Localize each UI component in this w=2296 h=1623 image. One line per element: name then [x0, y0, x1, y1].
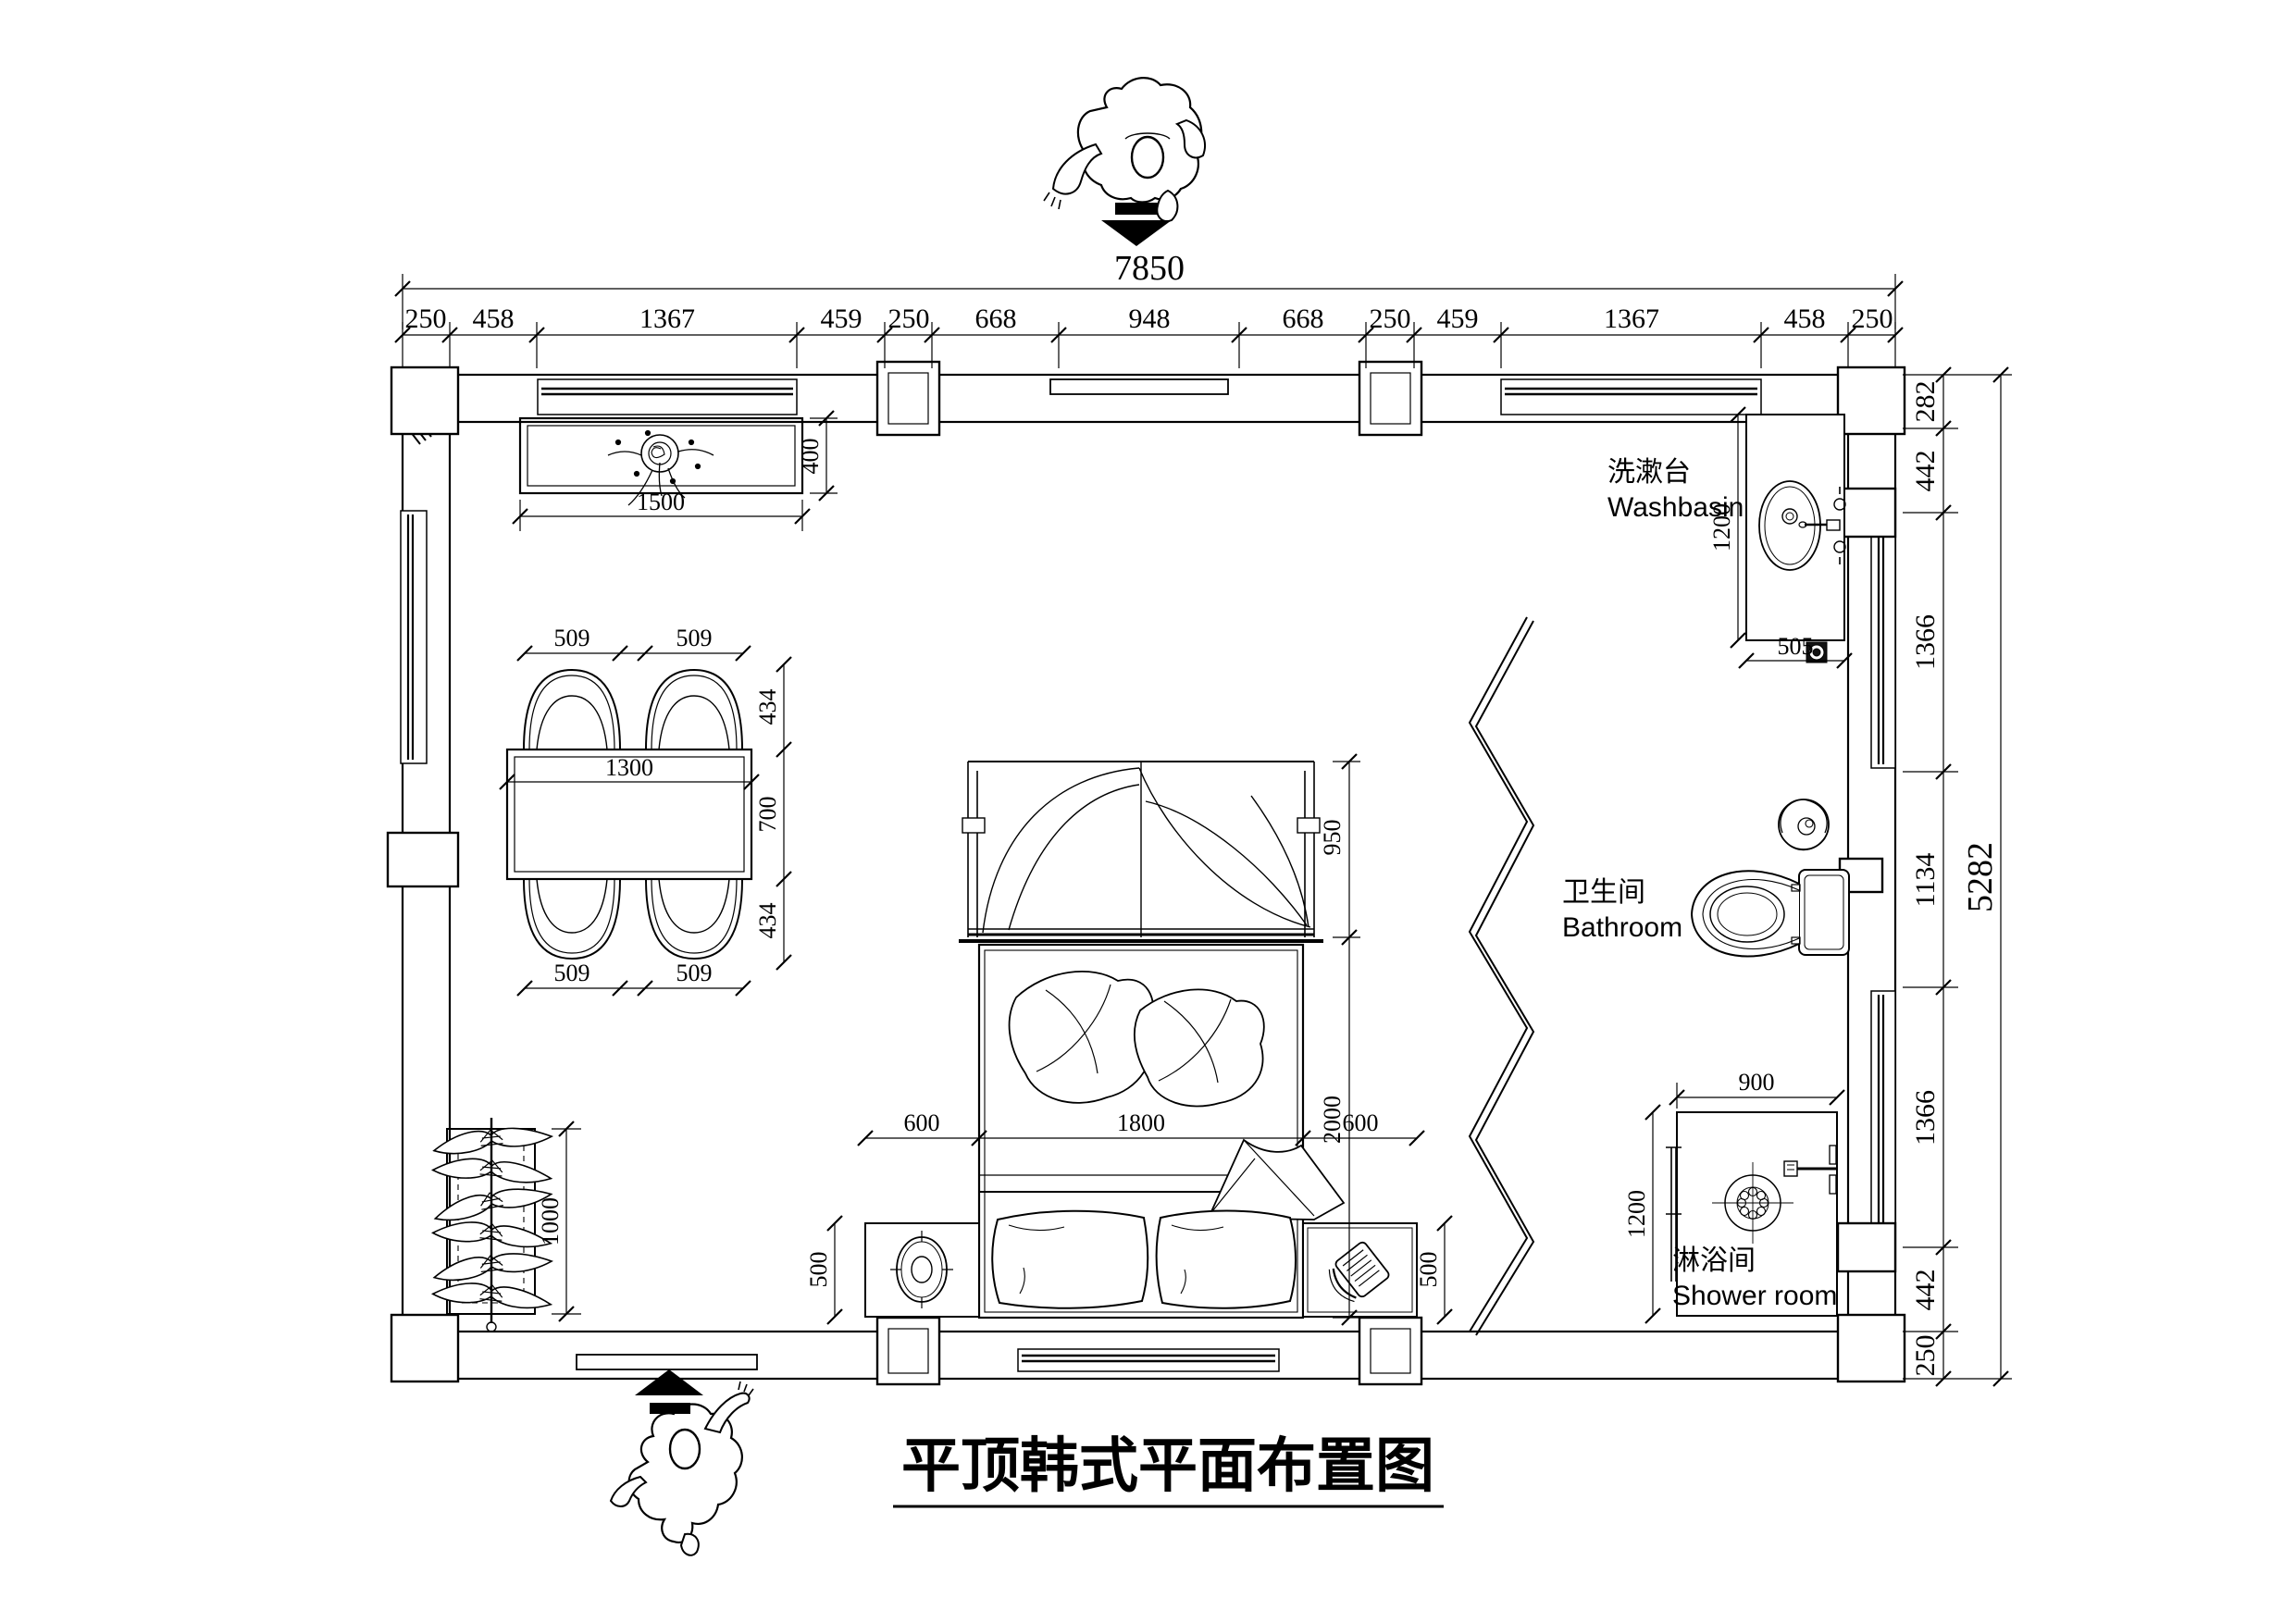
column	[1371, 1329, 1410, 1373]
drawing-title: 平顶韩式平面布置图	[893, 1432, 1444, 1506]
toilet	[1692, 870, 1849, 956]
dining-chair	[646, 879, 742, 959]
pillow-crumpled	[1135, 989, 1264, 1106]
label-shower-en: Shower room	[1672, 1281, 1837, 1311]
label-washbasin-en: Washbasin	[1607, 492, 1744, 523]
column	[1371, 373, 1410, 424]
dim-text: 509	[676, 960, 713, 986]
column	[388, 833, 458, 886]
dim-text: 250	[888, 304, 930, 334]
dim-text: 500	[805, 1252, 832, 1288]
door-top-entry	[1050, 379, 1228, 394]
dim-text: 250	[405, 304, 447, 334]
dim-text: 442	[1910, 451, 1941, 492]
dim-text: 250	[1852, 304, 1893, 334]
dim-text: 948	[1129, 304, 1171, 334]
label-shower-zh: 淋浴间	[1672, 1245, 1756, 1276]
nightstand-right	[1303, 1223, 1417, 1317]
dim-text: 282	[1910, 381, 1941, 423]
dim-text: 900	[1739, 1069, 1775, 1096]
dim-text: 600	[1343, 1109, 1379, 1136]
column	[391, 1315, 458, 1381]
column	[888, 1329, 928, 1373]
pillow-crumpled	[1010, 972, 1154, 1103]
dim-text: 1000	[537, 1197, 564, 1245]
dining-set	[507, 670, 751, 959]
exhaust-fan-icon	[1779, 799, 1829, 850]
label-bathroom-zh: 卫生间	[1562, 877, 1645, 908]
window-bottom	[1018, 1349, 1279, 1371]
page-title: 平顶韩式平面布置图	[901, 1432, 1434, 1499]
dim-text: 1366	[1910, 614, 1941, 670]
dim-text: 1300	[605, 754, 653, 781]
floor-plan-page: 7850 250 458 1367 459 250 668 948 668 25…	[0, 0, 2296, 1623]
column	[1838, 489, 1895, 537]
dim-text: 459	[821, 304, 863, 334]
dim-text: 7850	[1114, 249, 1185, 288]
person-head	[670, 1430, 700, 1468]
dim-text: 1367	[1604, 304, 1659, 334]
washbasin-counter	[1746, 415, 1845, 663]
dim-text: 500	[1415, 1252, 1442, 1288]
dim-text: 509	[554, 960, 590, 986]
dim-text: 442	[1910, 1270, 1941, 1311]
window-top-left	[538, 379, 797, 415]
dim-text: 434	[754, 689, 781, 725]
dim-text: 5282	[1961, 842, 2000, 912]
folding-partition	[1470, 617, 1533, 1335]
dim-text: 250	[1370, 304, 1411, 334]
column	[1838, 1315, 1905, 1381]
dim-text: 509	[676, 625, 713, 651]
dining-chair	[646, 670, 742, 750]
person-head	[1132, 137, 1163, 178]
dining-chair	[524, 879, 620, 959]
pillow	[1157, 1211, 1296, 1308]
dim-text: 1800	[1117, 1109, 1165, 1136]
dim-text: 1500	[637, 489, 685, 515]
window-top-right	[1501, 379, 1761, 415]
column	[1838, 367, 1905, 434]
nightstand-left	[865, 1223, 979, 1317]
dim-text: 458	[473, 304, 515, 334]
column	[1838, 1223, 1895, 1271]
dim-text: 1367	[639, 304, 695, 334]
bed-canopy	[959, 762, 1323, 941]
pillow	[992, 1211, 1148, 1308]
column	[888, 373, 928, 424]
dim-text: 458	[1784, 304, 1826, 334]
dim-text: 505	[1778, 633, 1814, 660]
dim-text: 434	[754, 903, 781, 939]
blanket-fold	[1209, 1140, 1344, 1220]
label-bathroom-en: Bathroom	[1562, 912, 1682, 943]
dim-text: 668	[1283, 304, 1324, 334]
column	[391, 367, 458, 434]
entry-person-top	[1044, 78, 1205, 221]
dining-chair	[524, 670, 620, 750]
dim-text: 1366	[1910, 1090, 1941, 1146]
dim-text: 1200	[1623, 1190, 1650, 1238]
door-bottom-entry	[577, 1355, 757, 1369]
window-right-upper	[1871, 516, 1895, 768]
dim-text: 250	[1910, 1335, 1941, 1377]
label-washbasin-zh: 洗漱台	[1607, 457, 1691, 488]
dim-text: 700	[754, 797, 781, 833]
dim-text: 1134	[1910, 853, 1941, 908]
window-right-lower	[1871, 991, 1895, 1244]
dim-text: 459	[1437, 304, 1479, 334]
dim-text: 509	[554, 625, 590, 651]
dim-text: 668	[975, 304, 1017, 334]
window-left	[401, 511, 427, 763]
dim-text: 400	[797, 439, 824, 475]
dim-text: 600	[904, 1109, 940, 1136]
dim-text: 950	[1319, 820, 1346, 856]
